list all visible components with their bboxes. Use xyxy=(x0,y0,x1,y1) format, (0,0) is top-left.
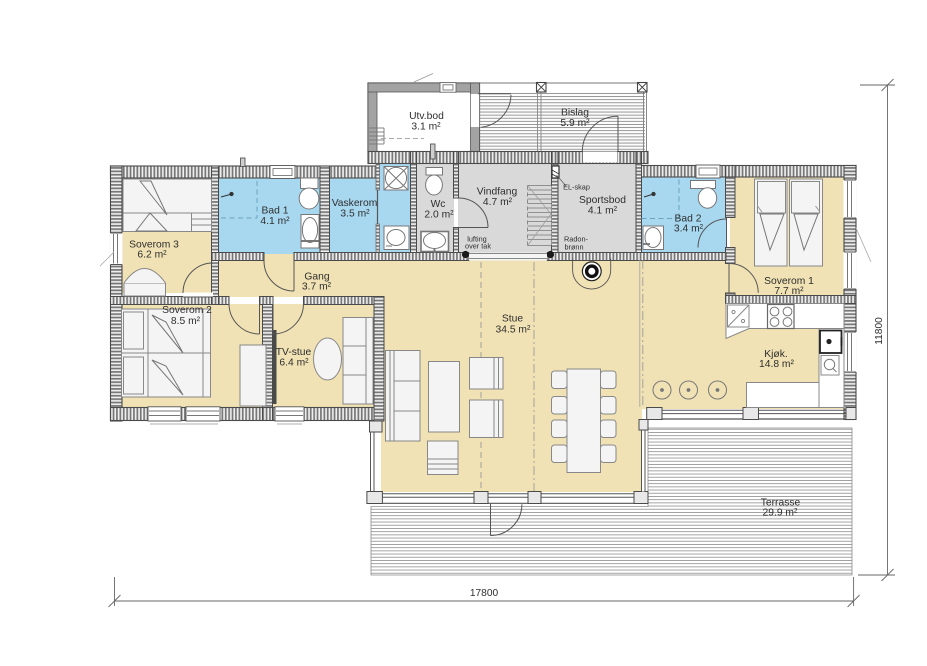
svg-text:4.7 m²: 4.7 m² xyxy=(483,197,513,208)
svg-text:Utv.bod: Utv.bod xyxy=(409,111,444,122)
svg-text:34.5 m²: 34.5 m² xyxy=(496,325,531,336)
svg-text:2.0 m²: 2.0 m² xyxy=(424,210,454,221)
svg-text:3.7 m²: 3.7 m² xyxy=(302,282,332,293)
svg-text:7.7 m²: 7.7 m² xyxy=(774,286,804,297)
svg-text:TV-stue: TV-stue xyxy=(276,347,312,358)
svg-text:6.4 m²: 6.4 m² xyxy=(279,358,309,369)
svg-text:3.4 m²: 3.4 m² xyxy=(674,224,704,235)
svg-text:over tak: over tak xyxy=(465,242,491,251)
svg-text:Soverom 2: Soverom 2 xyxy=(162,305,212,316)
svg-text:4.1 m²: 4.1 m² xyxy=(260,216,290,227)
svg-text:17800: 17800 xyxy=(470,588,499,599)
svg-text:4.1 m²: 4.1 m² xyxy=(588,206,618,217)
svg-text:Vaskerom: Vaskerom xyxy=(332,198,378,209)
svg-text:Vindfang: Vindfang xyxy=(477,187,518,198)
svg-text:14.8 m²: 14.8 m² xyxy=(759,359,794,370)
svg-text:3.1 m²: 3.1 m² xyxy=(411,122,441,133)
svg-text:Sportsbod: Sportsbod xyxy=(579,195,626,206)
svg-text:Wc: Wc xyxy=(431,199,446,210)
svg-text:29.9 m²: 29.9 m² xyxy=(763,508,798,519)
svg-text:brønn: brønn xyxy=(564,243,583,252)
svg-text:11800: 11800 xyxy=(874,317,885,345)
svg-text:8.5 m²: 8.5 m² xyxy=(171,316,201,327)
svg-text:Stue: Stue xyxy=(502,314,523,325)
svg-text:EL-skap: EL-skap xyxy=(563,183,590,192)
svg-text:5.9 m²: 5.9 m² xyxy=(560,118,590,129)
svg-text:6.2 m²: 6.2 m² xyxy=(137,250,167,261)
svg-text:Bislag: Bislag xyxy=(561,108,589,119)
svg-text:3.5 m²: 3.5 m² xyxy=(340,209,370,220)
svg-text:Bad 1: Bad 1 xyxy=(262,206,289,217)
